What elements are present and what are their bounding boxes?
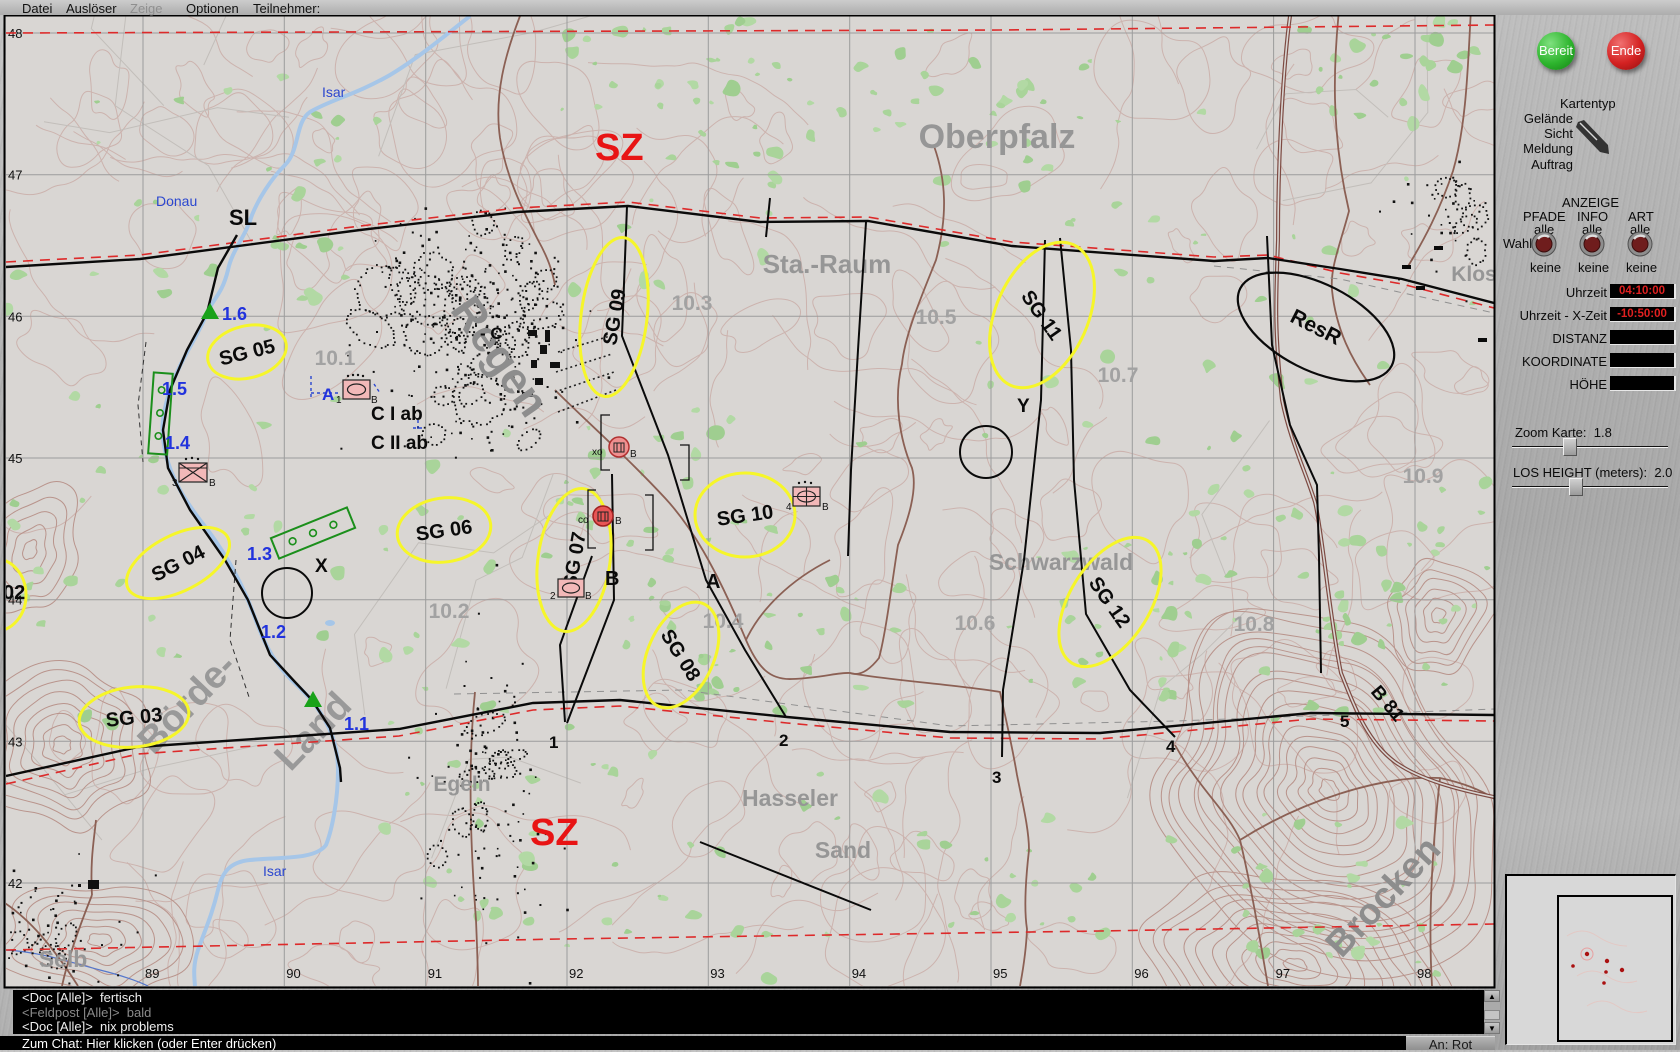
svg-text:10.4: 10.4 (703, 610, 744, 633)
svg-text:96: 96 (1134, 966, 1148, 981)
svg-text:Schwarzwald: Schwarzwald (989, 549, 1133, 575)
svg-text:co: co (578, 515, 589, 526)
svg-text:B: B (630, 449, 637, 460)
svg-text:92: 92 (569, 966, 583, 981)
svg-text:1.4: 1.4 (165, 433, 190, 453)
svg-text:1.2: 1.2 (261, 622, 286, 642)
svg-text:5: 5 (1340, 712, 1349, 731)
svg-text:90: 90 (286, 966, 300, 981)
svg-text:98: 98 (1417, 966, 1431, 981)
svg-text:47: 47 (8, 168, 22, 183)
svg-text:B: B (615, 516, 622, 527)
svg-text:10.7: 10.7 (1098, 364, 1139, 387)
svg-text:Donau: Donau (156, 193, 197, 209)
svg-text:- C: - C (480, 324, 503, 343)
svg-text:3: 3 (992, 768, 1001, 787)
svg-text:10.3: 10.3 (672, 292, 713, 315)
svg-text:SZ: SZ (530, 812, 579, 854)
svg-text:1.5: 1.5 (162, 379, 187, 399)
svg-text:4: 4 (1166, 737, 1176, 756)
svg-text:95: 95 (993, 966, 1007, 981)
svg-text:1: 1 (336, 395, 342, 406)
svg-text:10.8: 10.8 (1234, 613, 1275, 636)
svg-text:02: 02 (3, 582, 25, 604)
svg-text:89: 89 (145, 966, 159, 981)
svg-text:SZ: SZ (595, 127, 644, 169)
svg-text:Hasseler: Hasseler (742, 785, 838, 811)
svg-text:xo: xo (592, 447, 603, 458)
svg-text:93: 93 (710, 966, 724, 981)
svg-text:Isar: Isar (263, 863, 287, 879)
svg-text:B: B (209, 478, 216, 489)
svg-text:B: B (585, 591, 592, 602)
svg-text:C I ab: C I ab (371, 404, 423, 425)
svg-text:Oberpfalz: Oberpfalz (919, 118, 1076, 156)
svg-text:1.1: 1.1 (344, 714, 369, 734)
svg-text:10.5: 10.5 (916, 306, 957, 329)
svg-text:10.6: 10.6 (955, 612, 996, 635)
svg-text:C II ab: C II ab (371, 433, 428, 454)
svg-text:45: 45 (8, 451, 22, 466)
svg-text:A: A (322, 385, 334, 404)
svg-text:1.6: 1.6 (222, 304, 247, 324)
svg-text:10.1: 10.1 (315, 347, 356, 370)
svg-text:1.3: 1.3 (247, 544, 272, 564)
svg-text:Sand: Sand (815, 837, 871, 863)
svg-text:Klos: Klos (1451, 263, 1497, 286)
svg-text:2: 2 (779, 731, 788, 750)
svg-text:42: 42 (8, 876, 22, 891)
svg-text:A: A (706, 571, 720, 593)
svg-text:Egeln: Egeln (433, 773, 490, 796)
svg-text:46: 46 (8, 309, 22, 324)
svg-text:1: 1 (549, 733, 558, 752)
svg-text:Y: Y (1017, 396, 1030, 417)
svg-text:94: 94 (852, 966, 866, 981)
svg-text:10.2: 10.2 (429, 600, 470, 623)
svg-text:97: 97 (1276, 966, 1290, 981)
svg-text:3: 3 (172, 478, 178, 489)
svg-text:Sta.-Raum: Sta.-Raum (763, 249, 892, 279)
svg-text:X: X (315, 556, 328, 577)
svg-text:B: B (822, 502, 829, 513)
svg-text:43: 43 (8, 734, 22, 749)
svg-text:4: 4 (786, 502, 792, 513)
svg-text:10.9: 10.9 (1403, 465, 1444, 488)
svg-text:2: 2 (550, 591, 556, 602)
svg-text:B: B (605, 568, 619, 590)
svg-text:Isar: Isar (322, 84, 346, 100)
svg-text:SL: SL (229, 205, 257, 230)
svg-text:91: 91 (428, 966, 442, 981)
